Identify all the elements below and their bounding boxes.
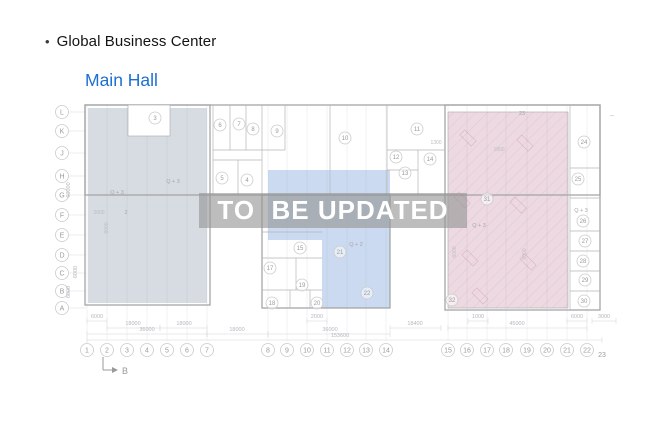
zone-left bbox=[88, 108, 207, 303]
zone-annotation: Q + 2 bbox=[349, 242, 363, 248]
grid-col-label: 6 bbox=[185, 348, 189, 355]
dimension-value: 2000 bbox=[311, 314, 323, 320]
zone-middle bbox=[268, 170, 390, 308]
dimension-value-inner: 2600 bbox=[93, 210, 104, 216]
dash-note: – bbox=[610, 111, 615, 120]
grid-col-label: 7 bbox=[205, 348, 209, 355]
section-marker-arrow-icon bbox=[112, 367, 118, 373]
grid-col-label: 16 bbox=[463, 348, 471, 355]
zone-annotation: Q + 3 bbox=[472, 223, 486, 229]
room-label: 19 bbox=[299, 283, 306, 289]
room-label: 13 bbox=[402, 171, 409, 177]
dimension-value: 1000 bbox=[472, 314, 484, 320]
grid-col-label: 20 bbox=[543, 348, 551, 355]
dimension-value-side: 6000 bbox=[66, 286, 72, 298]
room-label: 26 bbox=[580, 219, 587, 225]
dimension-value: 18000 bbox=[176, 321, 191, 327]
dimension-value-inner: 1300 bbox=[430, 140, 441, 146]
grid-col-label: 14 bbox=[382, 348, 390, 355]
grid-col-label: 3 bbox=[125, 348, 129, 355]
dimension-value-inner: 6000 bbox=[522, 248, 528, 259]
dimension-value-inner: 9000 bbox=[104, 222, 110, 233]
room-3-notch bbox=[128, 105, 170, 136]
grid-col-label: 1 bbox=[85, 348, 89, 355]
room-label: 25 bbox=[575, 177, 582, 183]
dimension-value: 6000 bbox=[571, 314, 583, 320]
grid-col-label: 15 bbox=[444, 348, 452, 355]
room-label: 21 bbox=[337, 250, 344, 256]
dimension-value: 6000 bbox=[91, 314, 103, 320]
dimension-value: 18000 bbox=[229, 327, 244, 333]
grid-row-label: A bbox=[60, 306, 65, 313]
zone-annotation: Q + 3 bbox=[574, 208, 588, 214]
grid-col-label: 12 bbox=[343, 348, 351, 355]
room-label: 12 bbox=[393, 155, 400, 161]
room-label: 24 bbox=[581, 140, 588, 146]
grid-col-label: 11 bbox=[323, 348, 330, 355]
grid-row-label: J bbox=[60, 151, 64, 158]
grid-row-label: K bbox=[60, 129, 65, 136]
dimension-value-side: 60000 bbox=[66, 182, 72, 197]
dimension-value: 45000 bbox=[509, 321, 524, 327]
section-marker-label: B bbox=[122, 366, 128, 376]
room-label: 20 bbox=[314, 301, 321, 307]
room-label: 31 bbox=[484, 197, 491, 203]
zone-annotation: Q + 3 bbox=[110, 190, 124, 196]
zone-annotation: 2 bbox=[124, 210, 127, 216]
room-label: 10 bbox=[342, 136, 349, 142]
grid-col-label: 4 bbox=[145, 348, 149, 355]
grid-col-label: 10 bbox=[303, 348, 311, 355]
room-label: 30 bbox=[581, 299, 588, 305]
dimension-value: 3000 bbox=[598, 314, 610, 320]
grid-row-label: C bbox=[59, 271, 64, 278]
grid-col-label: 17 bbox=[483, 348, 491, 355]
grid-col-label: 9 bbox=[285, 348, 289, 355]
grid-col-label: 22 bbox=[583, 348, 591, 355]
grid-row-label: G bbox=[59, 193, 64, 200]
grid-col-label: 13 bbox=[362, 348, 370, 355]
grid-col-label: 8 bbox=[266, 348, 270, 355]
grid-row-label: B bbox=[60, 289, 65, 296]
zone-annotation: 23 bbox=[519, 111, 525, 117]
grid-row-label: L bbox=[60, 110, 64, 117]
grid-col-label: 2 bbox=[105, 348, 109, 355]
grid-row-label: E bbox=[60, 233, 65, 240]
grid-row-label: H bbox=[59, 174, 64, 181]
room-label: 29 bbox=[582, 278, 589, 284]
dimension-value: 18000 bbox=[125, 321, 140, 327]
dimension-value-inner: 1800 bbox=[493, 147, 504, 153]
room-label: 17 bbox=[267, 266, 274, 272]
grid-row-label: F bbox=[60, 213, 64, 220]
watermark-banner: TO BE UPDATED bbox=[199, 193, 467, 228]
room-label: 14 bbox=[427, 157, 434, 163]
room-label: 22 bbox=[364, 291, 371, 297]
dimension-value: 153600 bbox=[331, 333, 349, 339]
room-label: 27 bbox=[582, 239, 589, 245]
dimension-value-side: 6000 bbox=[73, 266, 79, 278]
room-label: 32 bbox=[449, 298, 456, 304]
grid-col-label: 18 bbox=[502, 348, 510, 355]
room-label: 28 bbox=[580, 259, 587, 265]
page: • Global Business Center Main Hall 36789… bbox=[0, 0, 660, 440]
grid-col-label: 5 bbox=[165, 348, 169, 355]
dimension-value: 18400 bbox=[407, 321, 422, 327]
grid-col-label-23: 23 bbox=[598, 352, 606, 359]
grid-col-label: 21 bbox=[563, 348, 571, 355]
room-label: 11 bbox=[414, 127, 421, 133]
room-label: 15 bbox=[297, 246, 304, 252]
dimension-value-inner: 6000 bbox=[452, 246, 458, 257]
grid-row-label: D bbox=[59, 253, 64, 260]
grid-col-label: 19 bbox=[523, 348, 531, 355]
zone-annotation: Q + 3 bbox=[166, 179, 180, 185]
room-label: 18 bbox=[269, 301, 276, 307]
dimension-value: 36000 bbox=[139, 327, 154, 333]
